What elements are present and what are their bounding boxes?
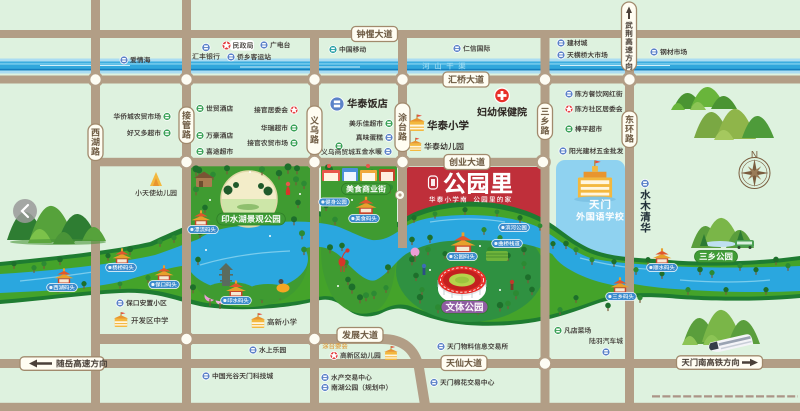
svg-text:N: N — [751, 150, 758, 161]
